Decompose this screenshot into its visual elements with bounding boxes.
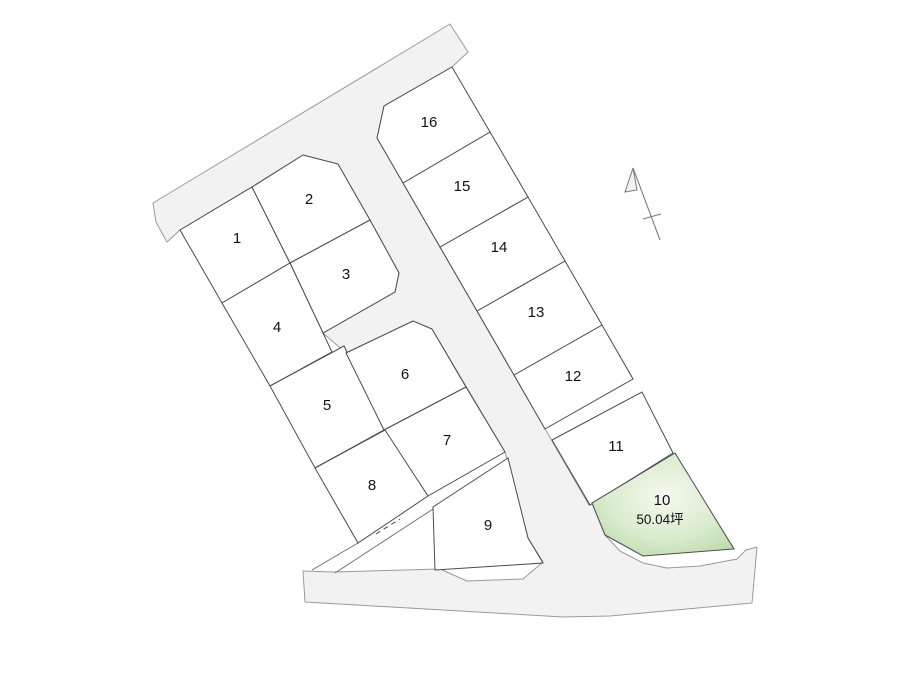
lot-10-label: 10 bbox=[654, 492, 671, 509]
lot-13-label: 13 bbox=[528, 304, 545, 321]
lot-6-label: 6 bbox=[401, 366, 409, 383]
lot-16-label: 16 bbox=[421, 114, 438, 131]
lot-3-label: 3 bbox=[342, 266, 350, 283]
land-plot-map: 1 2 3 4 5 6 7 8 9 10 50.04坪 11 12 13 14 … bbox=[0, 0, 900, 675]
lot-8-label: 8 bbox=[368, 477, 376, 494]
north-arrow-icon bbox=[625, 168, 661, 240]
plot-map-svg: 1 2 3 4 5 6 7 8 9 10 50.04坪 11 12 13 14 … bbox=[0, 0, 900, 675]
lot-4-label: 4 bbox=[273, 319, 281, 336]
lot-15-label: 15 bbox=[454, 178, 471, 195]
lot-5-label: 5 bbox=[323, 397, 331, 414]
lot-12-label: 12 bbox=[565, 368, 582, 385]
lot-14-label: 14 bbox=[491, 239, 508, 256]
lot-11-label: 11 bbox=[608, 438, 624, 455]
access-strip-upper-line bbox=[312, 543, 358, 570]
lot-1-label: 1 bbox=[233, 230, 241, 247]
lot-7-label: 7 bbox=[443, 432, 451, 449]
north-arrow-head bbox=[625, 168, 637, 192]
lot-10-area-label: 50.04坪 bbox=[636, 512, 683, 527]
lot-2-label: 2 bbox=[305, 191, 313, 208]
lot-9-label: 9 bbox=[484, 517, 492, 534]
north-arrow-line bbox=[633, 168, 660, 240]
